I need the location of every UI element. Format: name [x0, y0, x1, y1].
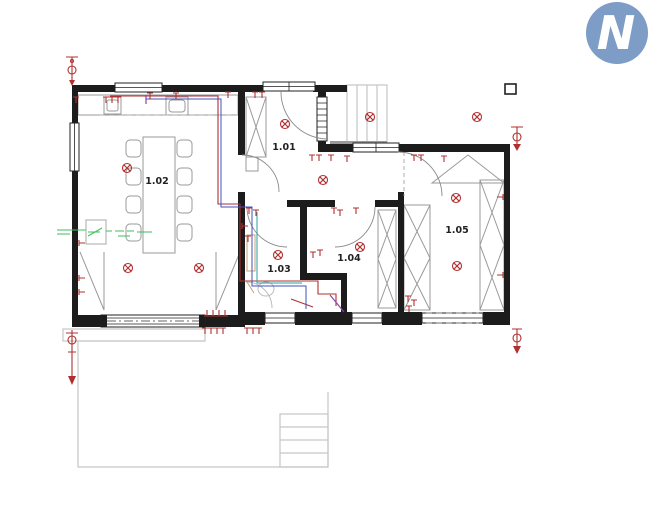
socket-switch-icon	[353, 208, 359, 214]
terrace-step-strip	[63, 329, 205, 341]
dining-table	[143, 137, 175, 253]
socket-switch-icon	[250, 328, 256, 334]
door-wc-swing	[335, 207, 375, 247]
floor-plan-drawing: 1.01 1.02 1.03 1.04 1.05 N	[0, 0, 650, 509]
terrace	[63, 329, 328, 467]
wall-bedroom-west	[398, 192, 404, 312]
wall-east	[504, 144, 510, 325]
window-bedroom-south	[422, 313, 483, 323]
socket-switch-icon	[253, 210, 259, 216]
socket-switch-icon	[497, 194, 503, 200]
ceiling-light-icon	[274, 251, 283, 260]
ceiling-light-icon	[124, 264, 133, 273]
socket-switch-icon	[256, 328, 262, 334]
window-kitchen	[115, 83, 162, 92]
wall-hall-south-2	[375, 200, 400, 207]
terrace-stairs	[280, 414, 328, 467]
room-label-1-04: 1.04	[337, 253, 361, 264]
socket-switch-icon	[220, 328, 226, 334]
window-hall-north	[353, 143, 399, 152]
dining-table-group	[126, 137, 192, 253]
door-living-hall-swing	[242, 155, 279, 192]
entrance-door-panel	[263, 82, 315, 91]
floor-plan-page: 1.01 1.02 1.03 1.04 1.05 N	[0, 0, 650, 509]
room-label-1-03: 1.03	[267, 264, 290, 275]
door-bedroom-swing	[398, 152, 442, 196]
socket-switch-icon	[406, 306, 412, 312]
socket-switch-icon	[317, 250, 323, 256]
room-label-1-02: 1.02	[145, 176, 168, 187]
socket-switch-icon	[208, 328, 214, 334]
duct-wall-right	[341, 280, 347, 312]
socket-switch-icon	[309, 155, 315, 161]
socket-switch-icon	[328, 155, 334, 161]
socket-switch-icon	[79, 275, 85, 281]
logo: N	[586, 2, 648, 64]
socket-switch-icon	[331, 208, 337, 214]
socket-switch-icon	[79, 289, 85, 295]
riser-bottom-right	[512, 329, 522, 354]
window-hall-east-hatched	[317, 97, 327, 141]
exterior-stair-structure	[330, 84, 516, 145]
wall-living-hall-lower	[238, 192, 245, 316]
socket-switch-icon	[344, 156, 350, 162]
ceiling-light-icon	[453, 262, 462, 271]
ceiling-light-icon	[319, 176, 328, 185]
socket-switch-icon	[316, 155, 322, 161]
window-bath-south	[265, 313, 295, 323]
duct-wall-top	[300, 273, 347, 280]
socket-switch-icon	[214, 328, 220, 334]
door-bath-swing	[247, 207, 287, 247]
socket-switch-icon	[244, 328, 250, 334]
window-living-south	[101, 315, 205, 327]
room-label-1-01: 1.01	[272, 142, 295, 153]
window-wc-south	[352, 313, 382, 323]
wall-west	[72, 85, 78, 327]
riser-bottom-left	[66, 330, 78, 385]
wall-living-hall-upper	[238, 92, 245, 155]
socket-switch-icon	[337, 210, 343, 216]
toilet	[258, 282, 274, 296]
ceiling-light-icon	[452, 194, 461, 203]
terrace-outline	[78, 341, 328, 467]
doors	[242, 92, 442, 247]
ceiling-light-icon	[473, 113, 482, 122]
riser-top-right	[511, 127, 523, 151]
green-note-text-marks	[106, 231, 152, 236]
chairs	[126, 140, 192, 241]
ceiling-light-icon	[281, 120, 290, 129]
riser-top-left	[66, 57, 78, 86]
socket-switch-icon	[310, 252, 316, 258]
ceiling-light-icon	[195, 264, 204, 273]
riser-symbols	[66, 57, 523, 385]
wall-hall-south-1	[287, 200, 335, 207]
socket-switch-icon	[245, 236, 251, 242]
socket-switch-icon	[497, 272, 503, 278]
kitchen-counter	[78, 95, 242, 115]
wall-bath-wc	[300, 207, 307, 275]
socket-switch-icon	[79, 240, 85, 246]
logo-letter: N	[597, 6, 636, 60]
window-living-west	[70, 123, 79, 171]
socket-switch-icon	[411, 300, 417, 306]
socket-switch-icon	[441, 156, 447, 162]
exterior-pillar	[505, 84, 516, 94]
room-label-1-05: 1.05	[445, 225, 468, 236]
ceiling-light-icon	[356, 243, 365, 252]
